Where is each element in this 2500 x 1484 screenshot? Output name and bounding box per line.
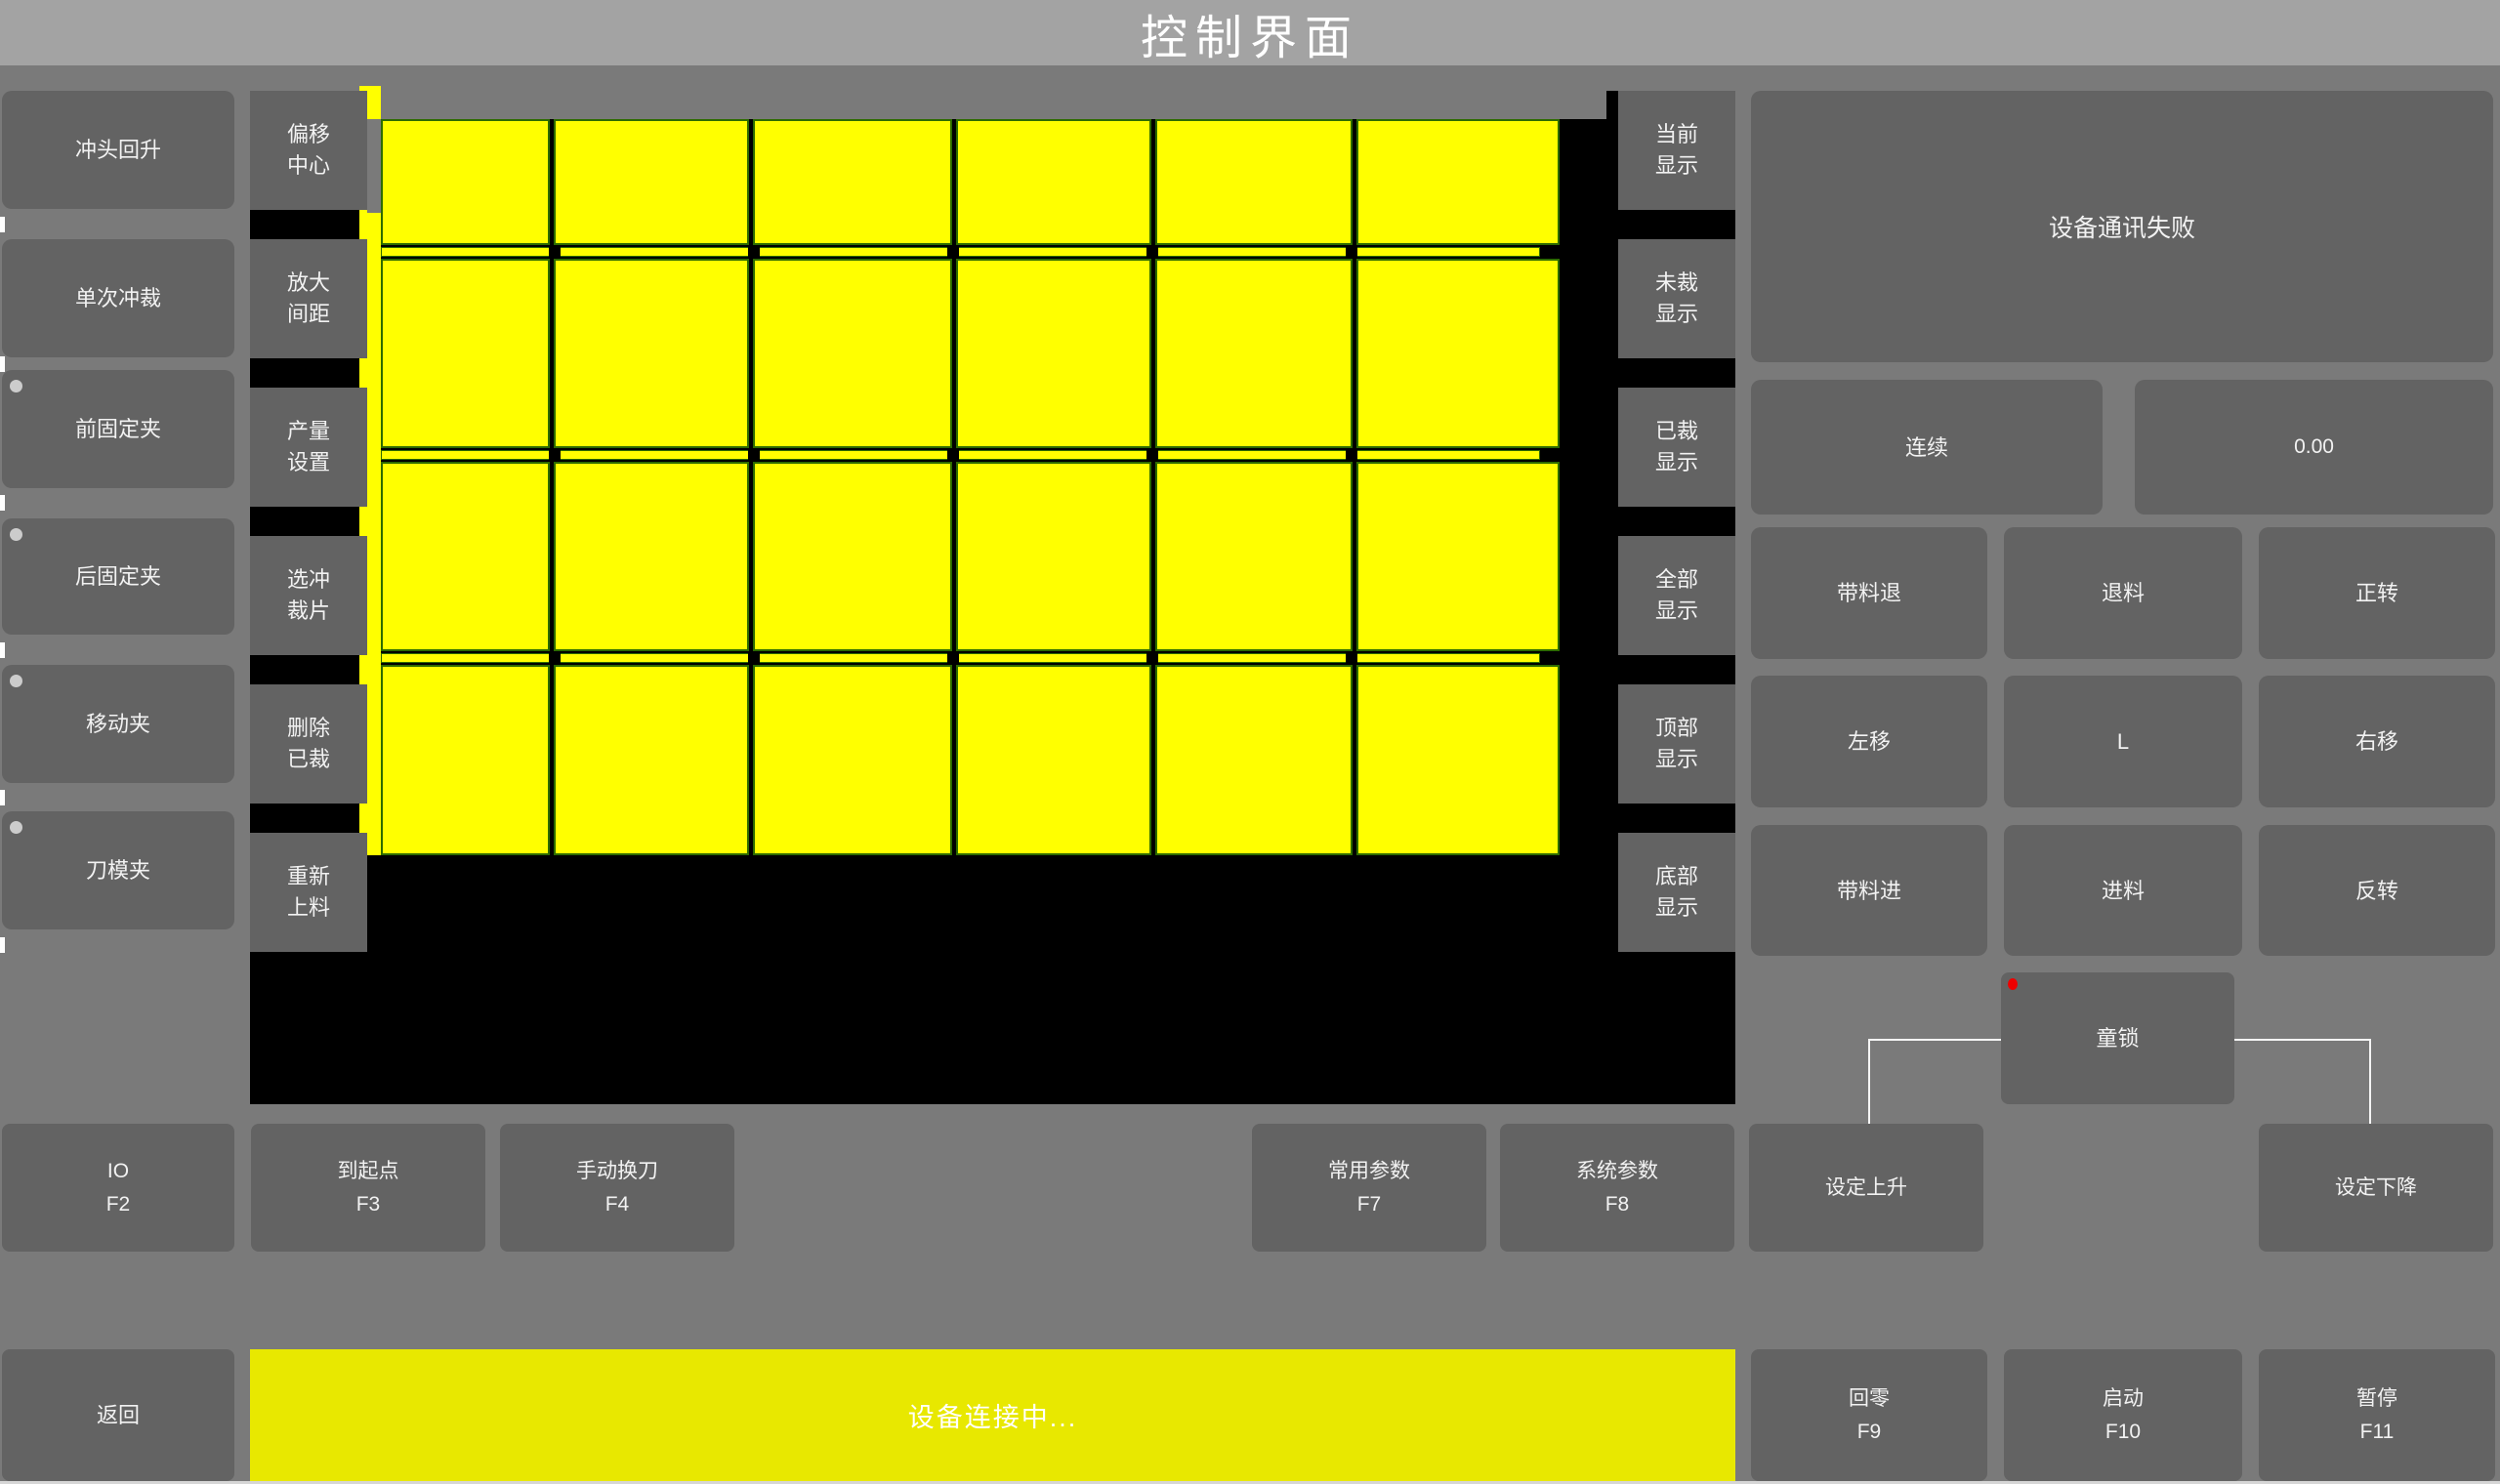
left-button-front-clamp[interactable]: 前固定夹 — [2, 370, 234, 488]
page-title: 控制界面 — [1141, 0, 1359, 67]
canvas-top-cover — [381, 91, 1606, 119]
back-button[interactable]: 返回 — [2, 1349, 234, 1481]
bottom-button-start[interactable]: 启动F10 — [2004, 1349, 2242, 1481]
material-piece[interactable] — [753, 665, 952, 855]
bracket-line — [2369, 1039, 2371, 1124]
tool-button-select-piece[interactable]: 选冲裁片 — [250, 536, 367, 655]
material-piece[interactable] — [554, 665, 749, 855]
func-button-set-fall[interactable]: 设定下降 — [2259, 1124, 2493, 1252]
separator-notch — [1346, 651, 1357, 665]
material-piece[interactable] — [956, 259, 1151, 448]
button-separator-tick — [0, 495, 5, 511]
button-separator-tick — [0, 790, 5, 805]
material-piece[interactable] — [753, 119, 952, 245]
tool-button-offset-center[interactable]: 偏移中心 — [250, 91, 367, 210]
value-display: 0.00 — [2135, 380, 2493, 515]
display-button-all[interactable]: 全部显示 — [1618, 536, 1735, 655]
indicator-dot — [10, 528, 22, 541]
separator-notch — [549, 651, 561, 665]
material-piece[interactable] — [1356, 259, 1560, 448]
alert-dot-icon — [2008, 978, 2018, 990]
separator-notch — [748, 448, 760, 462]
bottom-button-pause[interactable]: 暂停F11 — [2259, 1349, 2495, 1481]
jog-button-l[interactable]: L — [2004, 676, 2242, 807]
func-button-to-origin[interactable]: 到起点F3 — [251, 1124, 485, 1252]
jog-button-unload[interactable]: 退料 — [2004, 527, 2242, 659]
tool-button-reload-material[interactable]: 重新上料 — [250, 833, 367, 952]
func-button-io[interactable]: IOF2 — [2, 1124, 234, 1252]
bracket-line — [1868, 1039, 1870, 1124]
material-piece[interactable] — [1155, 462, 1353, 651]
tool-button-output-setting[interactable]: 产量设置 — [250, 388, 367, 507]
feed-strip-inset — [367, 119, 381, 213]
material-piece[interactable] — [381, 259, 550, 448]
material-piece[interactable] — [381, 665, 550, 855]
bracket-line — [2234, 1039, 2369, 1041]
display-button-cut[interactable]: 已裁显示 — [1618, 388, 1735, 507]
material-piece[interactable] — [1155, 665, 1353, 855]
mode-button-continuous[interactable]: 连续 — [1751, 380, 2103, 515]
separator-notch — [1346, 245, 1357, 259]
separator-notch — [1146, 651, 1158, 665]
button-separator-tick — [0, 356, 5, 372]
comm-status-message: 设备通讯失败 — [2049, 209, 2195, 244]
func-button-system-params[interactable]: 系统参数F8 — [1500, 1124, 1734, 1252]
jog-button-forward-rotate[interactable]: 正转 — [2259, 527, 2495, 659]
comm-status-box: 设备通讯失败 — [1751, 91, 2493, 362]
connection-status-text: 设备连接中... — [908, 1396, 1078, 1434]
title-bar: 控制界面 — [0, 0, 2500, 65]
func-button-common-params[interactable]: 常用参数F7 — [1252, 1124, 1486, 1252]
button-separator-tick — [0, 217, 5, 232]
connection-status-bar: 设备连接中... — [250, 1349, 1735, 1481]
bracket-line — [1868, 1039, 2001, 1041]
material-piece[interactable] — [956, 665, 1151, 855]
material-piece[interactable] — [554, 119, 749, 245]
material-piece[interactable] — [956, 119, 1151, 245]
material-piece[interactable] — [381, 462, 550, 651]
jog-button-strip-back[interactable]: 带料退 — [1751, 527, 1987, 659]
material-piece[interactable] — [956, 462, 1151, 651]
indicator-dot — [10, 675, 22, 687]
display-button-current[interactable]: 当前显示 — [1618, 91, 1735, 210]
material-piece[interactable] — [1356, 119, 1560, 245]
button-separator-tick — [0, 642, 5, 658]
material-piece[interactable] — [753, 259, 952, 448]
left-button-rear-clamp[interactable]: 后固定夹 — [2, 518, 234, 635]
material-piece[interactable] — [554, 259, 749, 448]
left-button-punch-up[interactable]: 冲头回升 — [2, 91, 234, 209]
separator-notch — [549, 245, 561, 259]
left-button-single-punch[interactable]: 单次冲裁 — [2, 239, 234, 357]
func-button-set-rise[interactable]: 设定上升 — [1749, 1124, 1983, 1252]
button-separator-tick — [0, 937, 5, 953]
material-piece[interactable] — [381, 119, 550, 245]
separator-notch — [1346, 448, 1357, 462]
tool-button-delete-cut[interactable]: 删除已裁 — [250, 684, 367, 804]
material-piece[interactable] — [1155, 259, 1353, 448]
material-piece[interactable] — [1155, 119, 1353, 245]
separator-notch — [748, 651, 760, 665]
display-button-bottom[interactable]: 底部显示 — [1618, 833, 1735, 952]
jog-button-load[interactable]: 进料 — [2004, 825, 2242, 956]
jog-button-move-right[interactable]: 右移 — [2259, 676, 2495, 807]
left-button-die-clamp[interactable]: 刀模夹 — [2, 811, 234, 929]
separator-notch — [1146, 245, 1158, 259]
display-button-top[interactable]: 顶部显示 — [1618, 684, 1735, 804]
indicator-dot — [10, 380, 22, 392]
indicator-dot — [10, 821, 22, 834]
separator-notch — [1146, 448, 1158, 462]
separator-notch — [947, 245, 959, 259]
material-piece[interactable] — [753, 462, 952, 651]
child-lock-button[interactable]: 童锁 — [2001, 972, 2234, 1104]
left-button-moving-clamp[interactable]: 移动夹 — [2, 665, 234, 783]
separator-notch — [549, 448, 561, 462]
display-button-uncut[interactable]: 未裁显示 — [1618, 239, 1735, 358]
separator-notch — [748, 245, 760, 259]
material-piece[interactable] — [1356, 665, 1560, 855]
tool-button-zoom-spacing[interactable]: 放大间距 — [250, 239, 367, 358]
separator-notch — [947, 651, 959, 665]
material-piece[interactable] — [554, 462, 749, 651]
bottom-button-home[interactable]: 回零F9 — [1751, 1349, 1987, 1481]
material-piece[interactable] — [1356, 462, 1560, 651]
func-button-manual-tool-change[interactable]: 手动换刀F4 — [500, 1124, 734, 1252]
jog-button-move-left[interactable]: 左移 — [1751, 676, 1987, 807]
jog-button-reverse-rotate[interactable]: 反转 — [2259, 825, 2495, 956]
separator-notch — [947, 448, 959, 462]
jog-button-strip-forward[interactable]: 带料进 — [1751, 825, 1987, 956]
